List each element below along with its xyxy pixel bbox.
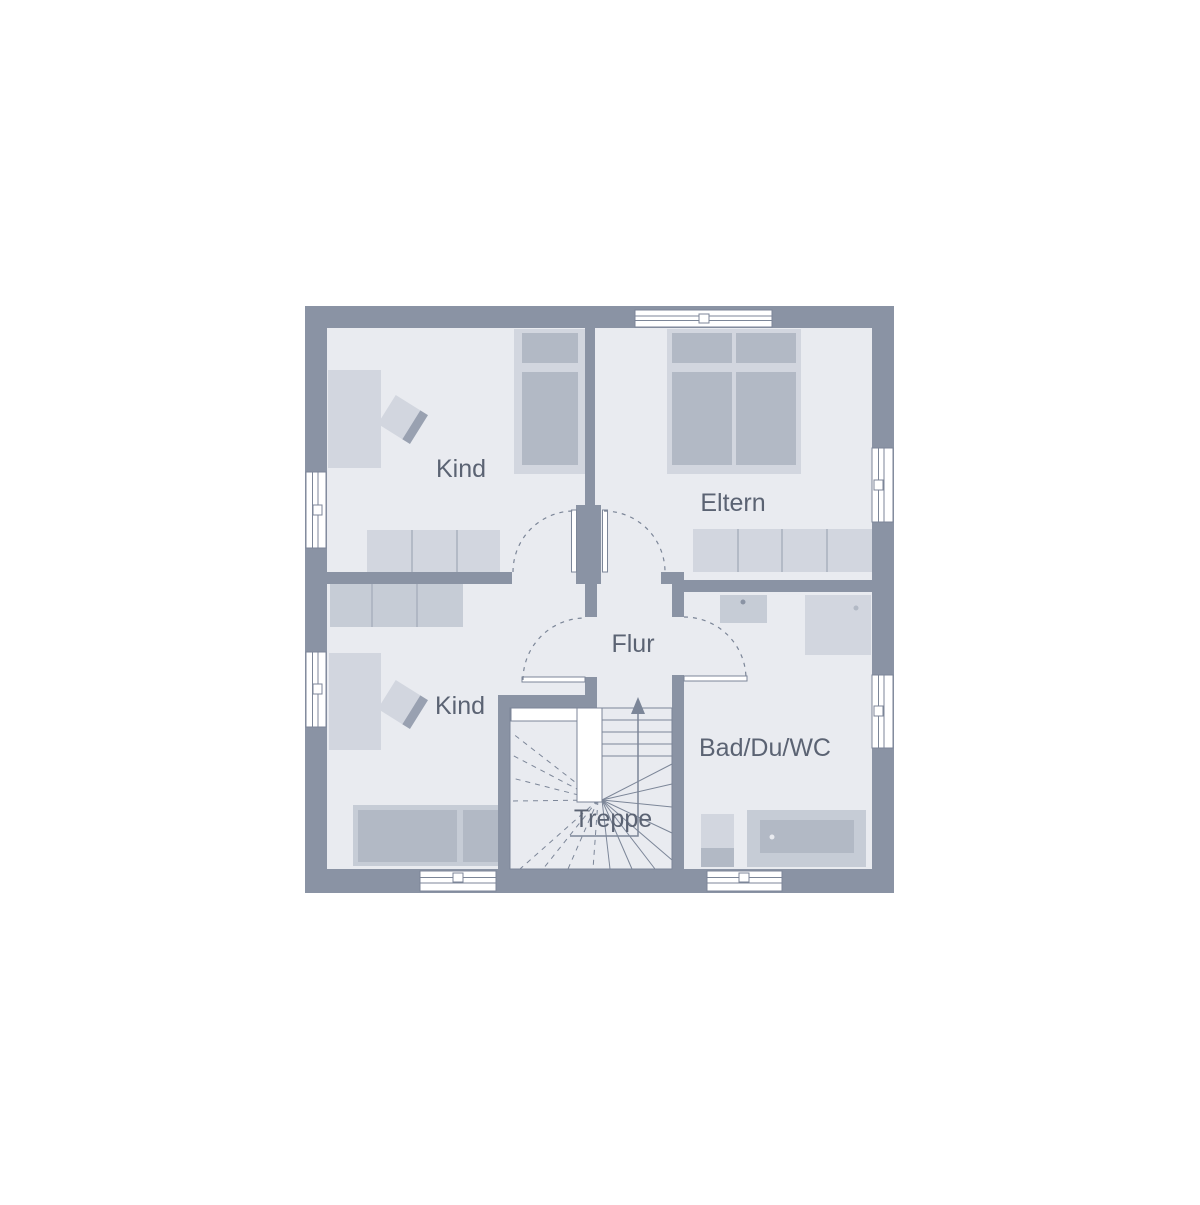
window-top bbox=[635, 310, 772, 327]
wardrobe-kind-top bbox=[367, 530, 500, 572]
room-label-eltern: Eltern bbox=[700, 489, 765, 517]
toilet bbox=[701, 814, 734, 867]
bathtub bbox=[747, 810, 866, 867]
bed-kind-top bbox=[514, 329, 585, 474]
floor-plan: Kind Eltern Kind Flur Bad/Du/WC Treppe bbox=[0, 0, 1200, 1200]
room-label-treppe: Treppe bbox=[574, 805, 652, 833]
wardrobe-kind-bottom bbox=[330, 583, 463, 627]
window-bottom-right bbox=[707, 871, 782, 891]
room-label-bad: Bad/Du/WC bbox=[699, 734, 831, 762]
window-right-upper bbox=[872, 448, 893, 522]
stair-stringer bbox=[577, 708, 602, 802]
room-label-kind-bottom: Kind bbox=[435, 692, 485, 720]
window-right-lower bbox=[872, 675, 893, 748]
window-left-upper bbox=[306, 472, 326, 548]
shower bbox=[805, 595, 871, 655]
desk-kind-bottom bbox=[329, 653, 381, 750]
window-bottom-left bbox=[420, 871, 496, 891]
room-label-flur: Flur bbox=[611, 630, 654, 658]
bed-kind-bottom bbox=[353, 805, 500, 866]
bed-eltern bbox=[667, 329, 801, 474]
desk-kind-top bbox=[328, 370, 381, 468]
stair-landing bbox=[511, 708, 577, 721]
room-label-kind-top: Kind bbox=[436, 455, 486, 483]
window-left-lower bbox=[306, 652, 326, 727]
wardrobe-eltern bbox=[693, 529, 872, 572]
washbasin bbox=[720, 595, 767, 623]
